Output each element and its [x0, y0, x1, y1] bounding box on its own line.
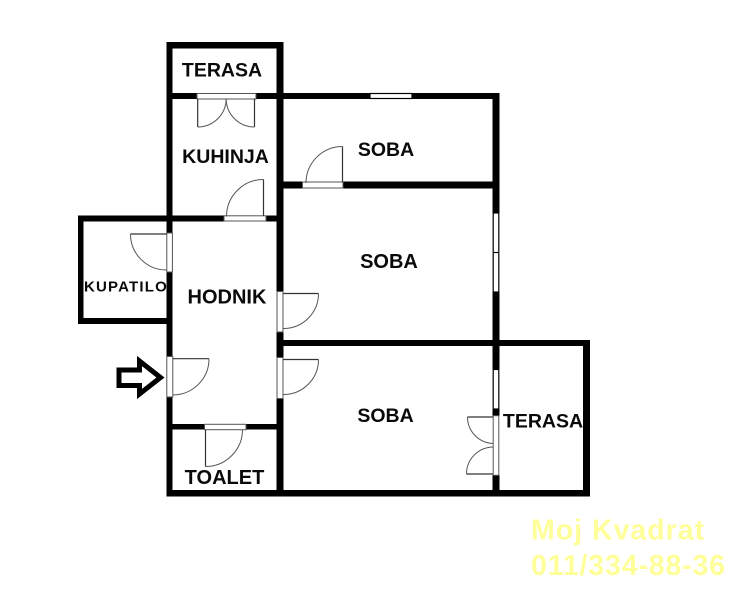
svg-text:Moj Kvadrat: Moj Kvadrat	[531, 515, 705, 547]
svg-text:KUHINJA: KUHINJA	[182, 146, 269, 168]
svg-text:SOBA: SOBA	[360, 251, 418, 273]
svg-text:KUPATILO: KUPATILO	[84, 279, 168, 296]
svg-text:TERASA: TERASA	[182, 60, 262, 82]
svg-text:TERASA: TERASA	[503, 411, 583, 433]
svg-text:HODNIK: HODNIK	[188, 287, 267, 309]
svg-text:011/334-88-36: 011/334-88-36	[531, 550, 726, 582]
svg-text:SOBA: SOBA	[357, 405, 413, 427]
svg-text:SOBA: SOBA	[358, 139, 414, 161]
svg-text:TOALET: TOALET	[185, 467, 265, 489]
